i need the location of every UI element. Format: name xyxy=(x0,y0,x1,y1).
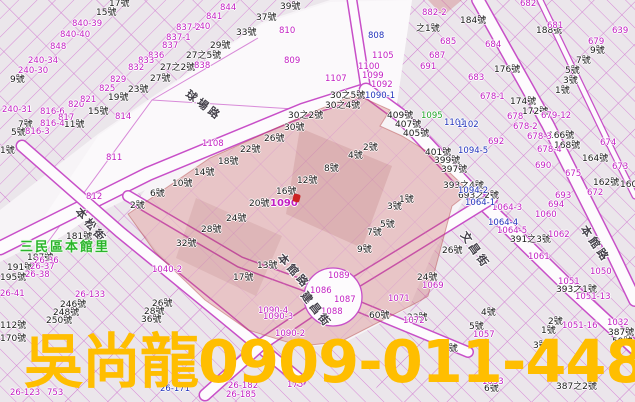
lot-number-label: 691 xyxy=(420,63,436,72)
lot-number-label: 1062 xyxy=(548,231,570,240)
lot-number-label: 814 xyxy=(115,113,131,122)
house-number-label: 29號 xyxy=(210,42,230,51)
lot-number-label: 639 xyxy=(612,27,628,36)
lot-number-label: 1108 xyxy=(202,140,224,149)
lot-number-label: 26-38 xyxy=(25,271,50,280)
house-number-label: 10號 xyxy=(172,180,192,189)
house-number-label: 184號 xyxy=(460,17,486,26)
street-name-label: 文昌街 xyxy=(457,228,494,272)
lot-number-label: 1051-13 xyxy=(575,293,611,302)
lot-number-label: 1095 xyxy=(421,112,443,121)
lot-number-label: 1064-3 xyxy=(492,204,522,213)
lot-number-label: 1087 xyxy=(334,296,356,305)
house-number-label: 33號 xyxy=(236,29,256,38)
lot-number-label: 687 xyxy=(429,52,445,61)
house-number-label: 195號 xyxy=(0,274,26,283)
house-number-label: 27號 xyxy=(150,75,170,84)
house-number-label: 13號 xyxy=(257,262,277,271)
house-number-label: 30之4號 xyxy=(325,102,360,111)
house-number-label: 5號 xyxy=(565,67,580,76)
house-number-label: 2號 xyxy=(130,202,145,211)
lot-number-label: 678-3 xyxy=(527,133,552,142)
house-number-label: 405號 xyxy=(403,130,429,139)
lot-number-label: 1089 xyxy=(328,272,350,281)
lot-number-label: 674 xyxy=(600,139,616,148)
lot-number-label: 681 xyxy=(547,22,563,31)
house-number-label: 30之5號 xyxy=(330,92,365,101)
lot-number-label: 1094-2 xyxy=(458,187,488,196)
house-number-label: 174號 xyxy=(510,98,536,107)
house-number-label: 3號 xyxy=(563,77,578,86)
watermark-text: 吳尚龍0909-011-448 xyxy=(24,314,635,399)
house-number-label: 24號 xyxy=(226,215,246,224)
house-number-label: 27之2號 xyxy=(160,64,195,73)
house-number-label: 6號 xyxy=(150,190,165,199)
lot-number-label: 1040-2 xyxy=(152,266,182,275)
house-number-label: 28號 xyxy=(201,226,221,235)
cadastral-map-viewport[interactable]: 17號15號39號37號33號29號27之5號27之2號27號23號19號9號1… xyxy=(0,0,635,402)
lot-number-label: 1071 xyxy=(388,295,410,304)
lot-number-label: 812 xyxy=(86,193,102,202)
lot-number-label: 848 xyxy=(50,43,66,52)
lot-number-label: 1060 xyxy=(535,211,557,220)
district-label: 三民區本館里 xyxy=(20,236,110,255)
lot-number-label: 809 xyxy=(284,57,300,66)
lot-number-label: 26-133 xyxy=(75,291,105,300)
house-number-label: 9號 xyxy=(590,47,605,56)
lot-number-label: 1064-4 xyxy=(488,219,518,228)
lot-number-label: 1102 xyxy=(457,121,479,130)
house-number-label: 1號 xyxy=(0,147,15,156)
house-number-label: 15號 xyxy=(88,108,108,117)
house-number-label: 9號 xyxy=(10,76,25,85)
lot-number-label: 685 xyxy=(440,38,456,47)
lot-number-label: 679-12 xyxy=(541,112,571,121)
house-number-label: 39號 xyxy=(280,3,300,12)
house-number-label: 1號 xyxy=(555,87,570,96)
lot-number-label: 684 xyxy=(485,41,501,50)
lot-number-label: 808 xyxy=(368,32,384,41)
house-number-label: 22號 xyxy=(240,146,260,155)
house-number-label: 9號 xyxy=(357,246,372,255)
house-number-label: 32號 xyxy=(176,240,196,249)
lot-number-label: 678-1 xyxy=(480,93,505,102)
lot-number-label: 811 xyxy=(106,154,122,163)
lot-number-label: 837-2 xyxy=(176,24,201,33)
house-number-label: 160 xyxy=(620,181,635,190)
lot-number-label: 1051 xyxy=(558,278,580,287)
lot-number-label: 810 xyxy=(279,27,295,36)
lot-number-label: 1107 xyxy=(325,75,347,84)
house-number-label: 26號 xyxy=(442,247,462,256)
lot-number-label: 821 xyxy=(80,96,96,105)
lot-number-label: 240-31 xyxy=(2,106,32,115)
lot-number-label: 844 xyxy=(220,4,236,13)
lot-number-label: 672 xyxy=(587,189,603,198)
lot-number-label: 1090-1 xyxy=(365,92,395,101)
lot-number-label: 840-40 xyxy=(60,31,90,40)
house-number-label: 7號 xyxy=(367,229,382,238)
house-number-label: 8號 xyxy=(324,165,339,174)
lot-number-label: 832 xyxy=(128,64,144,73)
lot-number-label: 690 xyxy=(535,162,551,171)
lot-number-label: 240-30 xyxy=(18,67,48,76)
lot-number-label: 1092 xyxy=(371,81,393,90)
house-number-label: 2號 xyxy=(363,144,378,153)
lot-number-label: 683 xyxy=(468,74,484,83)
house-number-label: 7號 xyxy=(576,57,591,66)
house-number-label: 37號 xyxy=(256,14,276,23)
house-number-label: 5號 xyxy=(11,129,26,138)
lot-number-label: 1061 xyxy=(528,253,550,262)
lot-number-label: 816-3 xyxy=(25,128,50,137)
house-number-label: 30之2號 xyxy=(288,112,323,121)
lot-number-label: 837 xyxy=(162,42,178,51)
house-number-label: 5號 xyxy=(380,221,395,230)
house-number-label: 162號 xyxy=(593,179,619,188)
lot-number-label: 1105 xyxy=(372,52,394,61)
lot-number-label: 841 xyxy=(206,13,222,22)
lot-number-label: 1094-5 xyxy=(458,147,488,156)
street-name-label: 本館路 xyxy=(577,222,614,266)
house-number-label: 27之5號 xyxy=(186,52,221,61)
lot-number-label: 882-2 xyxy=(422,9,447,18)
lot-number-label: 675 xyxy=(565,170,581,179)
lot-number-label: 692 xyxy=(488,138,504,147)
lot-number-label: 678-4 xyxy=(537,146,562,155)
lot-number-label: 678-2 xyxy=(513,123,538,132)
house-number-label: 4號 xyxy=(348,152,363,161)
house-number-label: 3號 xyxy=(387,203,402,212)
lot-number-label: 694 xyxy=(548,201,564,210)
house-number-label: 397號 xyxy=(441,166,467,175)
house-number-label: 12號 xyxy=(297,177,317,186)
house-number-label: 30號 xyxy=(284,124,304,133)
lot-number-label: 673 xyxy=(612,163,628,172)
lot-number-label: 840-39 xyxy=(72,20,102,29)
lot-number-label: 26-41 xyxy=(0,290,25,299)
house-number-label: 18號 xyxy=(218,158,238,167)
street-name-label: 球場路 xyxy=(182,86,225,124)
house-number-label: 23號 xyxy=(128,86,148,95)
lot-number-label: 1069 xyxy=(422,282,444,291)
house-number-label: 19號 xyxy=(108,94,128,103)
lot-number-label: 240-34 xyxy=(28,57,58,66)
house-number-label: 17號 xyxy=(233,274,253,283)
house-number-label: 176號 xyxy=(494,66,520,75)
house-number-label: 15號 xyxy=(96,9,116,18)
house-number-label: 170號 xyxy=(0,335,26,344)
lot-number-label: 838 xyxy=(194,62,210,71)
lot-number-label: 1050 xyxy=(590,268,612,277)
lot-number-label: 1064-1 xyxy=(465,199,495,208)
lot-number-label: 682 xyxy=(520,0,536,9)
house-number-label: 20號 xyxy=(249,200,269,209)
lot-number-label: 678 xyxy=(507,113,523,122)
house-number-label: 26號 xyxy=(264,135,284,144)
house-number-label: 14號 xyxy=(194,169,214,178)
lot-number-label: 679 xyxy=(588,38,604,47)
lot-number-label: 1064-5 xyxy=(497,227,527,236)
house-number-label: 之1號 xyxy=(416,25,440,34)
house-number-label: 112號 xyxy=(0,322,26,331)
street-name-label: 本館路 xyxy=(274,250,314,292)
lot-number-label: 825 xyxy=(99,85,115,94)
house-number-label: 391之3號 xyxy=(510,236,551,245)
house-number-label: 164號 xyxy=(582,155,608,164)
